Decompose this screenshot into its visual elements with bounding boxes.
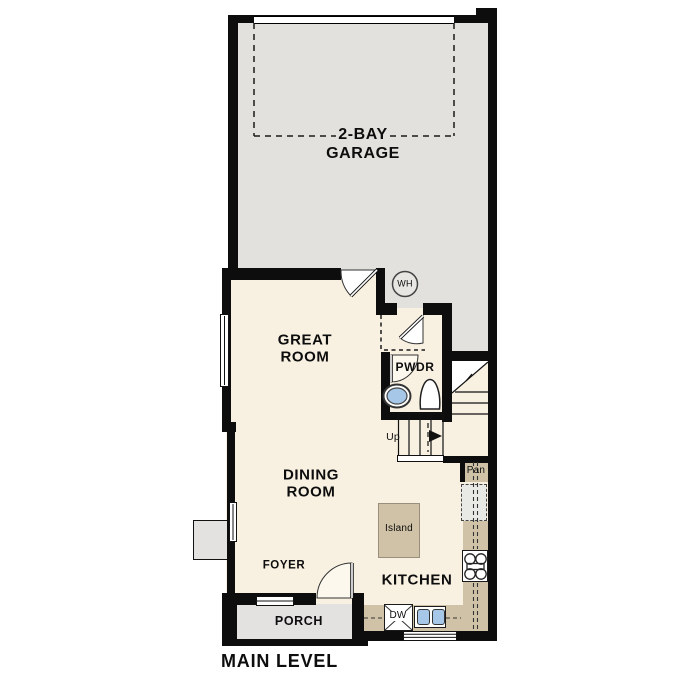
foyer-label: FOYER (263, 560, 306, 572)
garage-label-line1: 2-BAY (338, 127, 388, 143)
dishwasher-label: DW (388, 611, 407, 621)
powder-room-label: PWDR (395, 361, 434, 373)
porch-label: PORCH (275, 615, 323, 628)
garage-label-line2: GARAGE (326, 146, 400, 162)
pantry-label: Pan (467, 466, 485, 476)
cabinet-dashed-centerlines (364, 462, 478, 630)
powder-sink-basin (387, 388, 407, 404)
door-front-entry (317, 563, 352, 598)
water-heater-label: WH (397, 280, 412, 289)
stairs-upper-treads (452, 392, 488, 414)
door-garage-to-hall (400, 316, 423, 344)
dining-room-label-line2: ROOM (286, 485, 335, 500)
stairs-direction-arrow (429, 430, 442, 442)
plan-title: MAIN LEVEL (221, 652, 338, 670)
plan-linework (0, 0, 687, 687)
toilet (420, 380, 440, 410)
door-garage-to-great-room (341, 270, 377, 296)
great-room-label-line2: ROOM (280, 350, 329, 365)
garage-bay-dashed-outline (254, 23, 454, 136)
floor-plan: 2-BAY GARAGE GREAT ROOM PWDR WH Up DININ… (0, 0, 687, 687)
range-burners (465, 554, 486, 579)
kitchen-label: KITCHEN (382, 573, 453, 588)
island-label: Island (385, 524, 413, 534)
stairs-up-label: Up (386, 432, 400, 443)
dining-room-label-line1: DINING (283, 468, 339, 483)
great-room-label-line1: GREAT (278, 333, 332, 348)
